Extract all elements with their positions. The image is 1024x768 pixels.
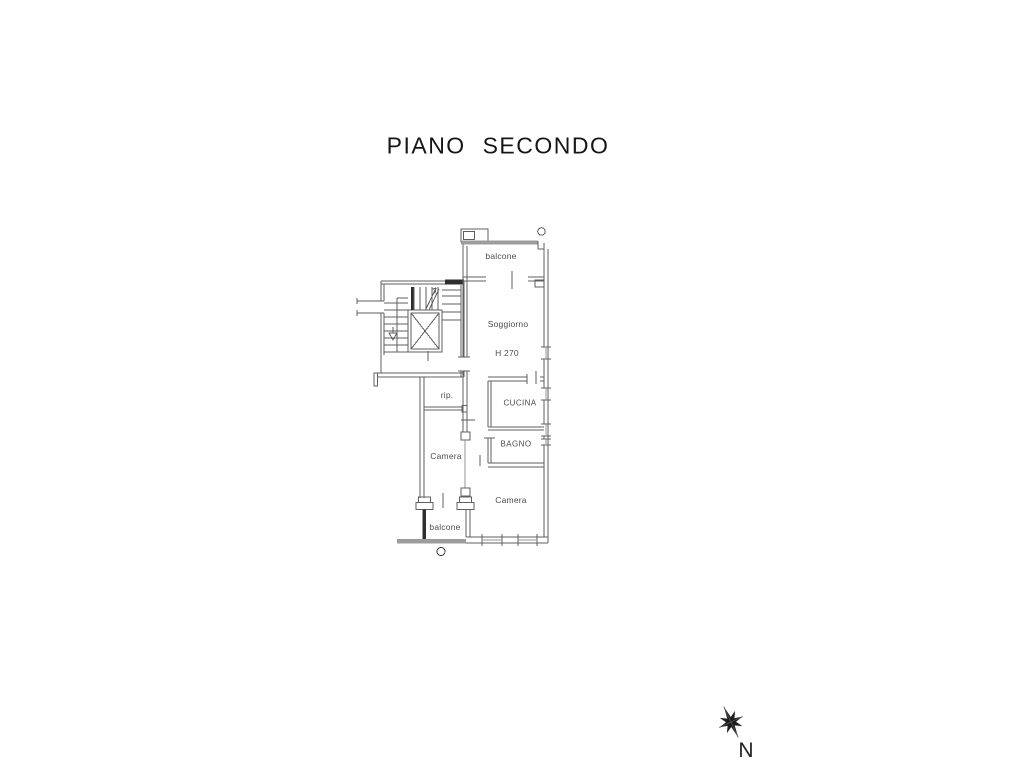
label-ceiling-height: H 270 (495, 348, 519, 358)
living-room-north-wall (463, 271, 544, 289)
floor-plan-drawing (0, 0, 1024, 768)
east-wall-windows (535, 249, 551, 543)
label-balcony-top: balcone (485, 251, 516, 261)
storage-wall (424, 406, 467, 413)
balcony-top (461, 228, 545, 249)
compass-rose-icon (719, 707, 743, 738)
hallway-wall (461, 377, 480, 496)
label-kitchen: CUCINA (503, 399, 536, 408)
staircase (384, 287, 461, 352)
label-bedroom-right: Camera (495, 495, 526, 505)
label-living-room: Soggiorno (488, 319, 529, 329)
label-bedroom-left: Camera (430, 451, 461, 461)
elevator-shaft (408, 310, 442, 361)
left-wing-west-wall (420, 377, 424, 498)
label-bathroom: BAGNO (501, 440, 532, 449)
floor-plan-page: PIANO SECONDO (0, 0, 1024, 768)
bedroom-right-walls (466, 510, 548, 546)
compass-north-label: N (738, 739, 753, 763)
label-balcony-bottom: balcone (429, 522, 460, 532)
label-storage: rip. (441, 390, 454, 400)
